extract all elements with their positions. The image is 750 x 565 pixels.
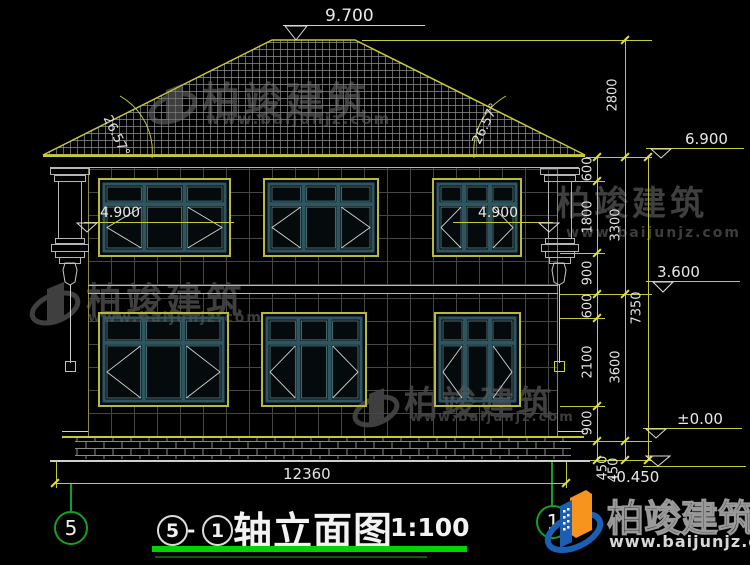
axis-line-left xyxy=(70,483,72,511)
floor2-level-text: 3.600 xyxy=(657,263,700,281)
ground-line xyxy=(50,460,590,462)
pipe-funnel xyxy=(551,262,567,286)
ridge-level-text: 9.700 xyxy=(325,6,374,26)
transom-right-text: 4.900 xyxy=(478,205,518,221)
ground-level-text: -0.450 xyxy=(611,468,659,486)
watermark-logo-icon xyxy=(350,382,402,434)
plinth-ledge-left xyxy=(62,431,88,432)
eave-level-text: 6.900 xyxy=(685,130,728,148)
dimension-label: 3600 xyxy=(609,350,624,383)
title-separator: - xyxy=(187,518,195,542)
dimension-label: 2800 xyxy=(606,78,621,111)
overall-width-text: 12360 xyxy=(283,465,331,483)
dimension-line xyxy=(625,40,626,460)
axis-bubble-left: 5 xyxy=(54,511,88,545)
dimension-label: 2100 xyxy=(581,345,596,378)
baijun-logo-icon xyxy=(544,484,606,562)
plinth-line xyxy=(62,436,584,438)
watermark-right-upper: 柏竣建筑 www.baijunjz.com xyxy=(556,176,741,241)
transom-left-text: 4.900 xyxy=(100,205,140,221)
title-axis-a-bubble: 5 xyxy=(157,515,188,546)
dimension-label: 7350 xyxy=(630,291,645,324)
dimension-label: 900 xyxy=(581,411,596,436)
pipe-shoe xyxy=(65,361,76,372)
window xyxy=(98,312,229,407)
elevation-drawing: 6001800900600210090045033003600450280073… xyxy=(0,0,750,565)
title-underline-2 xyxy=(155,556,427,558)
watermark-logo-icon xyxy=(146,78,200,132)
title-axis-b-bubble: 1 xyxy=(202,515,233,546)
dimension-label: 900 xyxy=(581,261,596,286)
title-underline xyxy=(152,546,467,552)
dimension-label: 600 xyxy=(581,294,596,319)
watermark-logo-icon xyxy=(26,276,84,334)
zero-level-text: ±0.00 xyxy=(677,410,723,428)
extension-line xyxy=(362,40,652,41)
pipe-shoe xyxy=(554,361,565,372)
eave-fascia-bottom xyxy=(50,167,579,168)
extension-line xyxy=(560,441,652,442)
window xyxy=(263,178,379,257)
plinth-brick-band xyxy=(75,437,571,459)
logo-url-text: www.baijunjz.com xyxy=(609,532,750,551)
title-scale: 1:100 xyxy=(390,513,470,542)
